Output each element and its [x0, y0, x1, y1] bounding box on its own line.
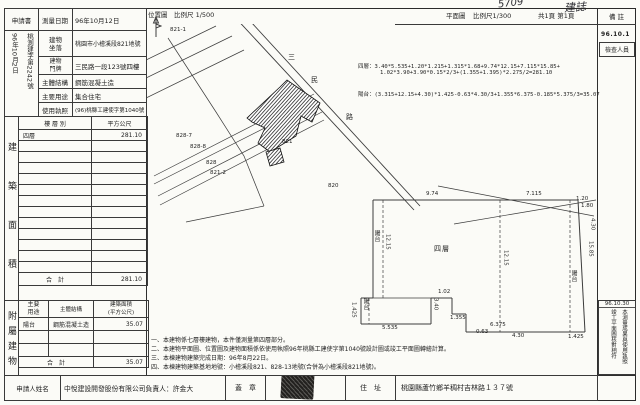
receive-text: 桃測建字第2242號 96年10月2日: [7, 33, 37, 89]
table-cell: [19, 331, 49, 344]
table-cell: 35.07: [94, 318, 149, 331]
seal-label: 蓋 章: [225, 375, 266, 401]
applicant-value: 中悅建設開發股份有限公司負責人：許金大: [60, 375, 226, 401]
building-area-table: 樓 層 別 平方公尺 四層281.10 合 計 281.10: [18, 116, 148, 286]
area-table: 樓 層 別 平方公尺 四層281.10 合 計 281.10: [18, 116, 148, 286]
use-label: 主要用途: [38, 88, 73, 103]
inspector-stamp: 檢查人員: [599, 42, 635, 57]
license-value: (96)桃縣工建使字第1040號: [72, 102, 147, 117]
table-cell: 陽台: [19, 318, 49, 331]
map-label: 6.375: [490, 323, 506, 329]
notes-block: 一、本建物係七層樓建物，本件僅測量第四層部分。 二、本建物平面圖、位置圖及建物面…: [151, 336, 591, 372]
table-cell: [92, 207, 148, 218]
use-value: 集合住宅: [72, 88, 147, 103]
table-cell: 281.10: [92, 130, 148, 141]
annex-table-side-label: 附屬建物: [4, 300, 19, 376]
table-cell: [92, 163, 148, 174]
map-label: 821-1: [170, 28, 186, 34]
annex-building-table: 主要 用途 主體結構 建築面積 (平方公尺) 陽台鋼筋混凝土造35.07 合 計…: [18, 300, 149, 368]
door-value: 三民路一段123號四樓: [72, 56, 147, 75]
annex-table: 主要 用途 主體結構 建築面積 (平方公尺) 陽台鋼筋混凝土造35.07 合 計…: [18, 300, 149, 368]
applicant-label: 申請人姓名: [4, 375, 61, 401]
table-cell: [19, 174, 92, 185]
table-cell: [19, 207, 92, 218]
table-cell: [19, 163, 92, 174]
survey-date-label: 測量日期: [38, 8, 73, 31]
map-label: 828-7: [176, 134, 192, 140]
map-label: 12.15: [384, 234, 390, 250]
map-label: 9.74: [426, 192, 438, 198]
location-map-scale: 比例尺 1/500: [174, 9, 214, 19]
door-label: 建物 門牌: [38, 56, 73, 75]
table-cell: [49, 344, 94, 357]
table-cell: [19, 240, 92, 251]
area-total-value: 281.10: [92, 273, 148, 286]
area-table-side-label: 建築面積: [4, 116, 19, 301]
floor-plan-title: 平面圖: [446, 10, 466, 20]
annex-col-use: 主要 用途: [19, 301, 49, 318]
table-cell: [19, 141, 92, 152]
verification-stamp-date: 96.10.30: [599, 301, 635, 308]
application-cell: 申請書: [4, 8, 39, 31]
annex-col-area: 建築面積 (平方公尺): [94, 301, 149, 318]
map-label: 820: [328, 184, 339, 190]
area-col-sqm: 平方公尺: [92, 117, 148, 130]
note-2: 二、本建物平面圖、位置圖及建物面積係依使用執照96年桃縣工建使字第1040號設計…: [151, 345, 591, 354]
map-label: 7.115: [526, 192, 542, 198]
company-seal-stamp: [280, 375, 314, 400]
note-3: 三、本棟建物建築完成日期：96年8月22日。: [151, 354, 591, 363]
survey-date-value: 96年10月12日: [72, 8, 147, 31]
map-label: 1.425: [350, 302, 356, 318]
area-col-floor: 樓 層 別: [19, 117, 92, 130]
structure-label: 主體結構: [38, 74, 73, 89]
map-label: 821-2: [210, 171, 226, 177]
area-total-label: 合 計: [19, 273, 92, 286]
map-label: 821: [282, 140, 293, 146]
map-label: 4.30: [589, 218, 595, 230]
table-cell: [19, 185, 92, 196]
floor-plan-drawing: [356, 178, 597, 342]
annex-total-value: 35.07: [94, 357, 149, 368]
map-label: 1.02: [438, 290, 450, 296]
scanned-survey-document: { "colors":{"ink":"#1f1f1f","paper":"#fb…: [0, 0, 640, 405]
note-1: 一、本建物係七層樓建物，本件僅測量第四層部分。: [151, 336, 591, 345]
map-label: 路: [346, 114, 353, 121]
map-label: 民: [311, 77, 318, 84]
map-label: 三: [288, 54, 295, 61]
map-label: 陽台: [362, 298, 368, 310]
table-cell: [92, 229, 148, 240]
license-label: 使用執照: [38, 102, 73, 117]
map-label: 1.425: [568, 335, 584, 341]
map-label: 陽台: [373, 230, 379, 242]
map-label: 1.80: [581, 204, 593, 210]
table-cell: [19, 218, 92, 229]
table-cell: [49, 331, 94, 344]
floor-plan-scale: 比例尺1/300: [473, 10, 511, 20]
table-cell: [92, 141, 148, 152]
map-label: 12.15: [502, 250, 508, 266]
table-cell: [94, 331, 149, 344]
table-cell: [92, 174, 148, 185]
floor-area-formula-line2: 1.02*3.90+3.90*0.15*2/3+(1.355+1.395)*2.…: [380, 70, 552, 76]
verification-stamp-box: 96.10.30 本測量成果與使用執照竣工平面圖核對相符: [598, 300, 636, 375]
table-cell: [92, 152, 148, 163]
table-cell: [92, 262, 148, 273]
receive-number-date: 桃測建字第2242號 96年10月2日: [4, 30, 39, 117]
remark-date-stamp: 96.10.1: [601, 31, 630, 38]
table-cell: [92, 196, 148, 207]
map-label: 15.85: [587, 241, 593, 257]
annex-col-struct: 主體結構: [49, 301, 94, 318]
annex-total-label: 合 計: [19, 357, 94, 368]
table-cell: [19, 229, 92, 240]
map-label: 0.63: [476, 330, 488, 336]
map-label: 1.20: [576, 197, 588, 203]
note-4: 四、本棟建物建築基地地號：小檜溪段821、828-13地號(合併為小檜溪段821…: [151, 363, 591, 372]
table-cell: [92, 240, 148, 251]
page-count: 共1頁 第1頁: [538, 10, 574, 20]
address-value: 桃園縣蘆竹鄉羊稠村吉林路１３７號: [395, 375, 598, 401]
table-cell: [92, 251, 148, 262]
map-label: 3.40: [432, 298, 438, 310]
table-cell: [94, 344, 149, 357]
table-cell: [92, 218, 148, 229]
structure-value: 鋼筋混凝土造: [72, 74, 147, 89]
remark-header: 備 註: [597, 8, 636, 25]
table-cell: [19, 152, 92, 163]
map-label: 四層: [434, 246, 450, 253]
table-cell: [92, 185, 148, 196]
map-label: 陽台: [570, 270, 576, 282]
map-label: 1.355: [450, 316, 466, 322]
table-cell: [19, 251, 92, 262]
table-cell: [19, 344, 49, 357]
location-value: 桃園市小檜溪段821地號: [72, 30, 147, 57]
map-label: 828: [206, 161, 217, 167]
location-label: 建物 坐落: [38, 30, 73, 57]
address-label: 住 址: [345, 375, 396, 401]
balcony-area-formula: 陽台：(3.315+12.15+4.30)*1.425-0.63*4.30/3+…: [358, 90, 600, 98]
table-cell: 鋼筋混凝土造: [49, 318, 94, 331]
verification-stamp-text: 本測量成果與使用執照竣工平面圖核對相符: [605, 309, 629, 367]
table-cell: [19, 262, 92, 273]
map-label: 4.30: [512, 334, 524, 340]
map-label: 5.535: [382, 326, 398, 332]
seal-cell: [265, 375, 346, 401]
map-label: 828-8: [190, 145, 206, 151]
drawing-area: 位置圖 比例尺 1/500 平面圖 比例尺1/300 共1頁 第1頁: [146, 8, 597, 375]
floor-area-formula-line1: 四層：3.40*5.535+1.20*1.215+1.315*1.68+9.74…: [358, 62, 560, 70]
location-map-title: 位置圖: [148, 9, 168, 19]
table-cell: 四層: [19, 130, 92, 141]
table-cell: [19, 196, 92, 207]
